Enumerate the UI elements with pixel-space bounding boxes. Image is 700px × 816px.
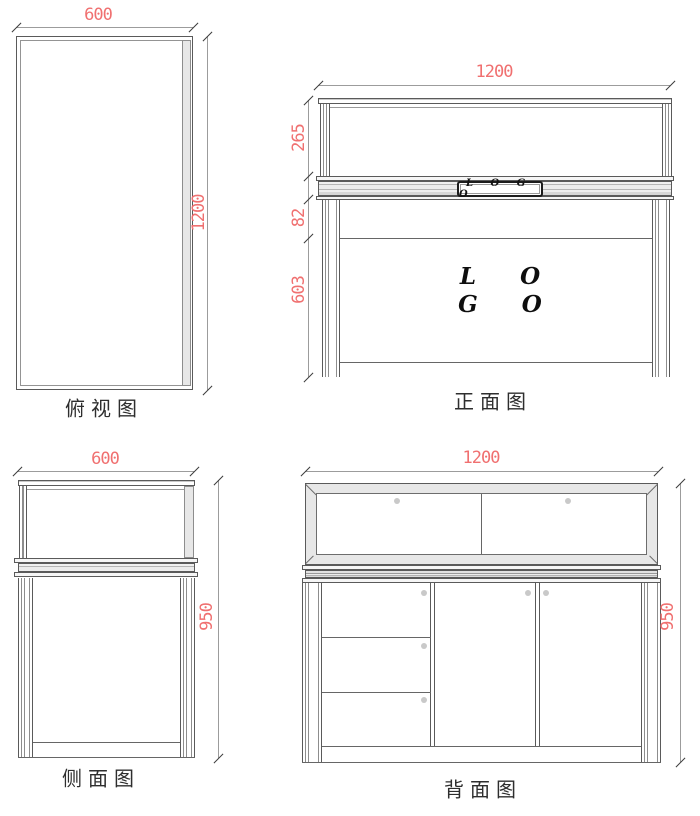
side-back-leg	[180, 578, 195, 758]
front-logo-line1: L O	[440, 263, 560, 291]
knob-dot	[525, 590, 531, 596]
top-view-caption: 俯视图	[65, 393, 143, 422]
back-view-caption: 背面图	[444, 774, 522, 803]
knob-dot	[394, 498, 400, 504]
front-glass-top-cap	[318, 98, 672, 104]
front-bottom-rail	[340, 362, 652, 363]
back-bottom-edge	[302, 762, 661, 763]
front-view-width-dim-label: 1200	[476, 62, 513, 82]
front-right-leg	[652, 200, 670, 377]
knob-dot	[421, 590, 427, 596]
front-glass-left-post	[320, 104, 330, 176]
front-glass-right-post	[662, 104, 672, 176]
back-drawer-column-divider	[430, 583, 435, 746]
top-view-width-dim-line	[16, 27, 193, 28]
side-bottom-edge	[18, 757, 195, 758]
side-view-width-dim-label: 600	[91, 449, 119, 469]
front-left-leg	[322, 200, 340, 377]
back-counter-band-mid	[305, 570, 658, 578]
side-view-height-dim-line	[218, 480, 219, 758]
drawing-sheet: 600 1200 俯视图 1200 L O G O	[0, 0, 700, 816]
front-glass-top-edge	[330, 107, 662, 108]
side-glass-back-panel	[184, 486, 194, 558]
side-kick-line	[33, 742, 180, 743]
side-glass-front-post	[19, 486, 27, 558]
back-kick-line	[322, 746, 641, 747]
back-view-width-dim-label: 1200	[463, 448, 500, 468]
back-view-height-dim-line	[680, 483, 681, 762]
back-sliding-door-divider	[481, 494, 482, 554]
back-view-width-dim-line	[305, 471, 658, 472]
side-front-leg	[18, 578, 33, 758]
front-view-width-dim-line	[318, 85, 670, 86]
back-drawer-separator	[322, 637, 431, 638]
knob-dot	[565, 498, 571, 504]
knob-dot	[543, 590, 549, 596]
top-view-depth-dim-label: 1200	[189, 195, 209, 232]
miter-line	[305, 556, 313, 564]
front-logo-plate: L O G O	[457, 181, 543, 197]
front-view-caption: 正面图	[454, 386, 532, 415]
back-left-leg	[302, 583, 322, 763]
top-view-inner-frame	[20, 40, 189, 386]
front-shelf-line	[340, 238, 652, 239]
knob-dot	[421, 643, 427, 649]
miter-line	[646, 484, 657, 495]
knob-dot	[421, 697, 427, 703]
side-glass-top-edge	[27, 489, 184, 490]
miter-line	[649, 556, 657, 564]
front-glass-height-dim-label: 265	[289, 124, 309, 152]
back-door-divider	[535, 583, 540, 746]
front-logo-line2: G O	[440, 291, 560, 319]
side-view-caption: 侧面图	[62, 763, 140, 792]
front-body-height-dim-label: 603	[289, 276, 309, 304]
front-apron-height-dim-label: 82	[289, 209, 309, 227]
top-view-width-dim-label: 600	[84, 5, 112, 25]
side-glass-top-cap	[18, 480, 195, 486]
miter-line	[305, 484, 316, 495]
back-drawer-separator	[322, 692, 431, 693]
front-logo-graphic: L O G O	[440, 263, 560, 319]
side-counter-band-mid	[18, 563, 195, 572]
back-view-height-dim-label: 950	[658, 603, 678, 631]
front-logo-plate-text: L O G O	[459, 178, 541, 200]
back-counter-band-bottom	[302, 578, 661, 583]
side-view-height-dim-label: 950	[197, 603, 217, 631]
side-view-width-dim-line	[17, 471, 194, 472]
side-counter-band-bottom	[14, 572, 198, 577]
